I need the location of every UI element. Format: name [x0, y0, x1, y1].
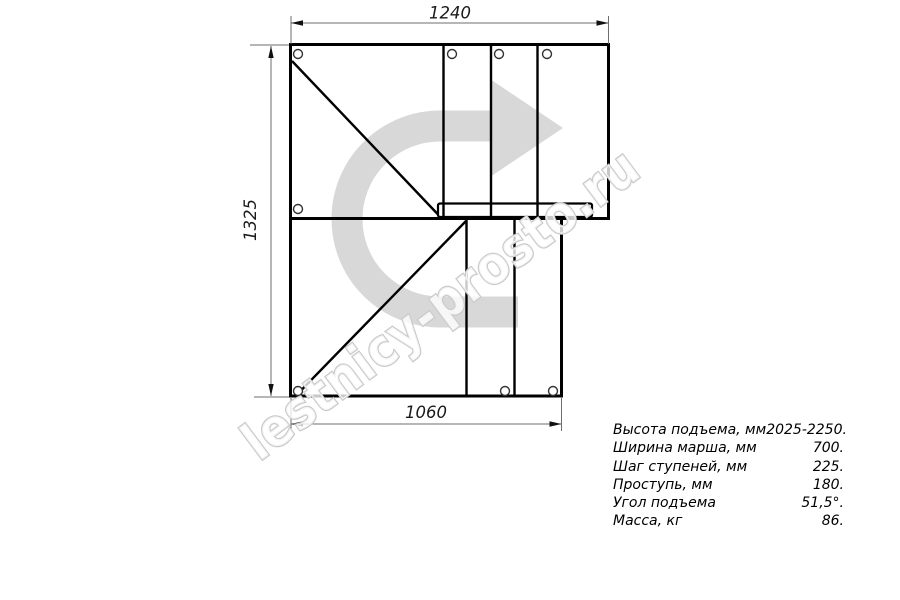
spec-row-step-pitch: Шаг ступеней, мм 225.	[613, 458, 844, 476]
spec-value: 2025-2250.	[766, 421, 847, 439]
dim-arrow-right-icon	[550, 421, 562, 426]
spec-row-mass: Масса, кг 86.	[613, 512, 844, 530]
dimension-bottom-value: 1060	[405, 403, 447, 422]
dimension-top: 1240	[291, 4, 609, 45]
spec-value: 180.	[813, 476, 844, 494]
dimension-left: 1325	[241, 45, 289, 397]
mount-hole-icon	[294, 50, 303, 59]
spec-label: Масса, кг	[613, 512, 682, 530]
spec-label: Шаг ступеней, мм	[613, 458, 747, 476]
dim-arrow-right-icon	[597, 20, 609, 25]
dimension-top-value: 1240	[429, 4, 471, 23]
spec-row-tread: Проступь, мм 180.	[613, 476, 844, 494]
dim-arrow-left-icon	[291, 20, 303, 25]
mount-hole-icon	[543, 50, 552, 59]
spec-row-rise-height: Высота подъема, мм 2025-2250.	[613, 421, 844, 439]
spec-value: 51,5°.	[801, 494, 844, 512]
spec-label: Угол подъема	[613, 494, 716, 512]
spec-value: 225.	[813, 458, 844, 476]
dim-arrow-up-icon	[268, 46, 273, 58]
mount-hole-icon	[448, 50, 457, 59]
spec-label: Высота подъема, мм	[613, 421, 766, 439]
turn-arrow-head	[490, 79, 563, 177]
spec-row-rise-angle: Угол подъема 51,5°.	[613, 494, 844, 512]
mount-hole-icon	[549, 387, 558, 396]
spec-value: 86.	[822, 512, 844, 530]
dimension-left-value: 1325	[241, 199, 260, 241]
spec-label: Проступь, мм	[613, 476, 713, 494]
mount-hole-icon	[501, 387, 510, 396]
spec-value: 700.	[813, 439, 844, 457]
mount-hole-icon	[495, 50, 504, 59]
spec-row-flight-width: Ширина марша, мм 700.	[613, 439, 844, 457]
staircase-drawing-page: 1240 1325 1060 lestnicy-prosto.	[0, 0, 900, 600]
site-watermark-text: lestnicy-prosto.ru	[231, 137, 651, 473]
mount-hole-icon	[294, 205, 303, 214]
spec-table: Высота подъема, мм 2025-2250. Ширина мар…	[613, 421, 844, 531]
spec-label: Ширина марша, мм	[613, 439, 757, 457]
